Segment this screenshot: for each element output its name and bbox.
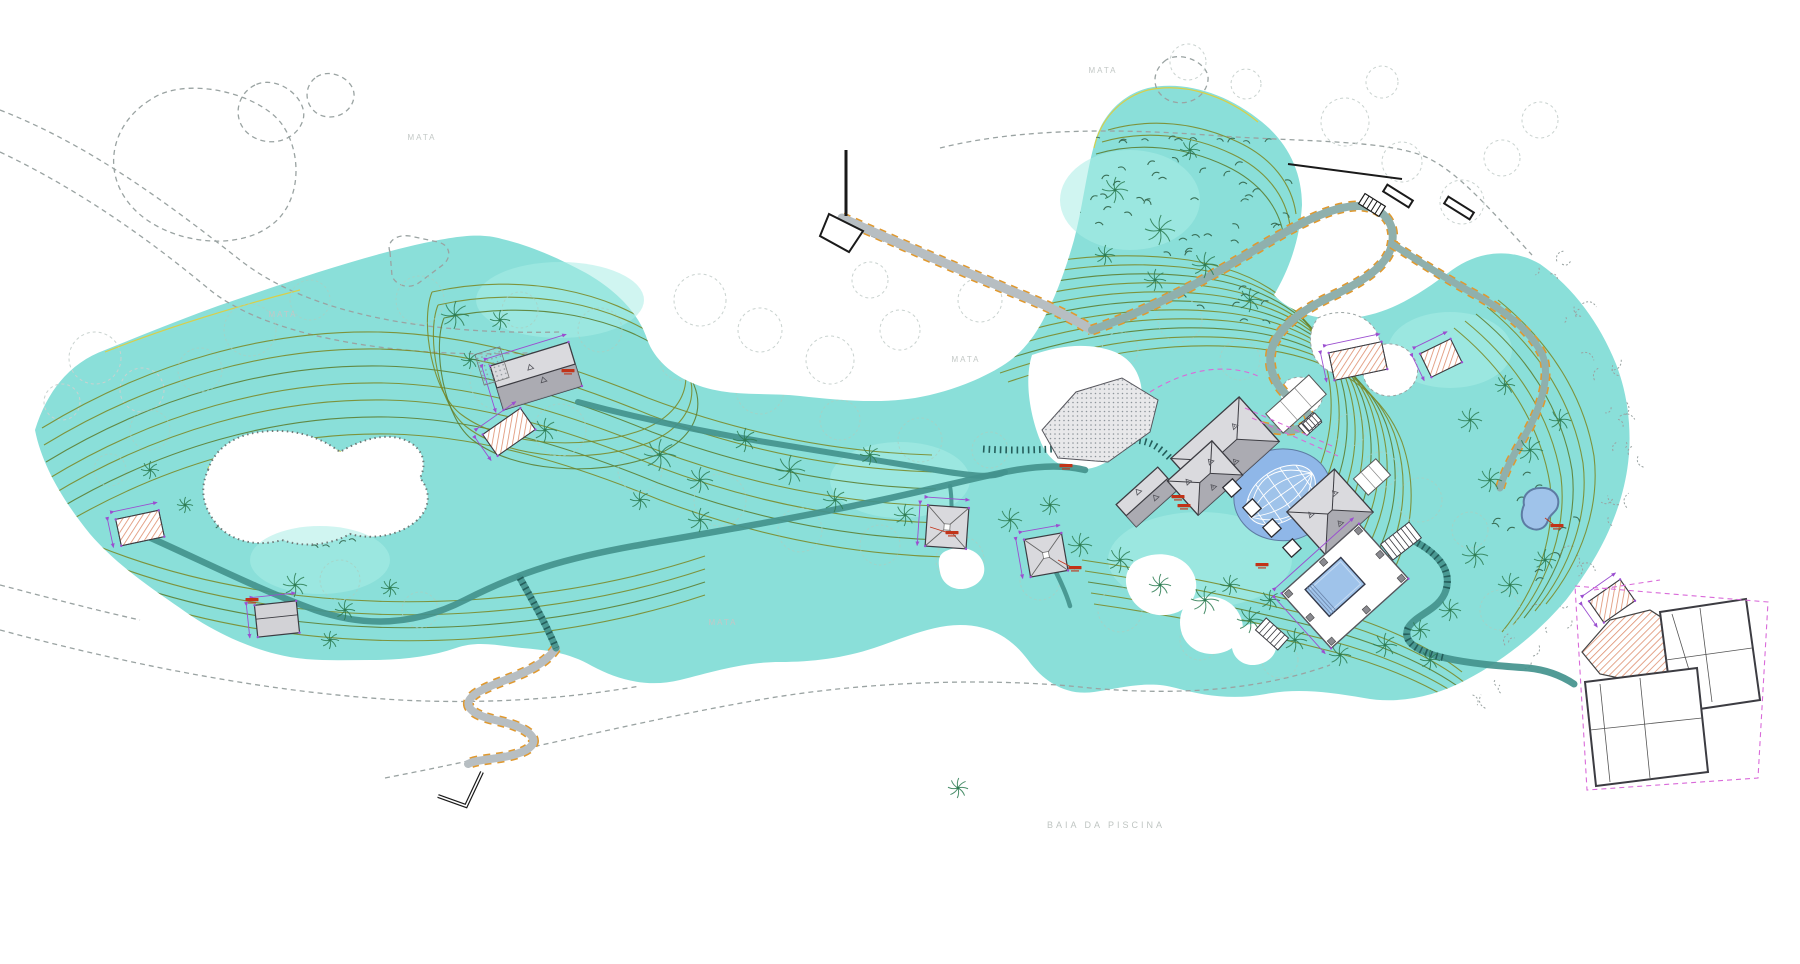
red-annotation-underline xyxy=(948,535,956,536)
survey-tree-circle xyxy=(1484,140,1520,176)
rock-mark xyxy=(1494,679,1496,686)
survey-tree-circle xyxy=(852,262,888,298)
scrub-mark xyxy=(385,461,392,465)
scrub-mark xyxy=(392,459,399,463)
rock-mark xyxy=(1533,645,1542,657)
boundary-dashed-line xyxy=(114,88,296,241)
rock-mark xyxy=(1473,694,1480,705)
palm-tree-icon xyxy=(948,778,968,798)
survey-tree-circle xyxy=(806,336,854,384)
boundary-dashed-line xyxy=(238,82,304,141)
scrub-mark xyxy=(1025,305,1032,308)
scrub-mark xyxy=(1414,154,1421,157)
edge-line xyxy=(208,440,342,468)
rock-mark xyxy=(1565,620,1573,630)
light-terrain-patch xyxy=(1060,150,1200,250)
scrub-mark xyxy=(1026,140,1033,144)
survey-tree-circle xyxy=(1366,66,1398,98)
light-terrain-patch xyxy=(476,262,644,338)
scrub-mark xyxy=(1314,145,1321,147)
red-annotation-underline xyxy=(248,602,256,603)
rock-mark xyxy=(1582,300,1597,307)
canopy-circle xyxy=(660,340,700,380)
rock-mark xyxy=(1560,606,1568,608)
red-annotation-underline xyxy=(1062,468,1070,469)
scrub-mark xyxy=(373,458,380,462)
scrub-mark xyxy=(264,438,271,441)
red-annotation-underline xyxy=(1071,570,1079,571)
scrub-mark xyxy=(982,147,989,150)
survey-tree-circle xyxy=(738,308,782,352)
scrub-mark xyxy=(269,435,276,440)
boundary-dashed-line xyxy=(0,585,140,620)
rock-mark xyxy=(1478,695,1486,710)
survey-tree-circle xyxy=(880,310,920,350)
scrub-mark xyxy=(360,457,367,460)
red-annotation-label xyxy=(562,369,575,372)
scrub-mark xyxy=(256,527,263,531)
survey-tree-circle xyxy=(1522,102,1558,138)
rock-mark xyxy=(1545,626,1547,633)
scrub-mark xyxy=(921,262,928,265)
faint-label: MATA xyxy=(708,618,737,627)
scrub-mark xyxy=(351,453,358,457)
scrub-mark xyxy=(413,467,420,469)
scrub-mark xyxy=(251,439,258,441)
survey-tree-circle xyxy=(1231,69,1261,99)
rock-mark xyxy=(1554,249,1563,261)
survey-tree-circle xyxy=(1321,98,1369,146)
gate-bar xyxy=(1444,197,1474,220)
light-terrain-patch xyxy=(250,526,390,594)
scrub-mark xyxy=(240,524,247,529)
scrub-mark xyxy=(306,446,313,448)
red-annotation-underline xyxy=(1258,567,1266,568)
rock-mark xyxy=(1498,685,1501,693)
survey-tree-circle xyxy=(1382,142,1422,182)
rock-mark xyxy=(1562,261,1571,266)
survey-tree-circle xyxy=(674,274,726,326)
boundary-dashed-line xyxy=(307,74,354,117)
scrub-mark xyxy=(406,465,413,469)
scrub-mark xyxy=(1073,142,1080,144)
red-annotation-underline xyxy=(1553,528,1561,529)
site-plan-drawing: MATAMATAMATAMATAMATABAIA DA PISCINA xyxy=(0,0,1800,964)
scrub-mark xyxy=(913,258,920,262)
scrub-mark xyxy=(881,245,888,249)
faint-label: BAIA DA PISCINA xyxy=(1047,820,1165,830)
road xyxy=(468,648,556,764)
scrub-mark xyxy=(313,444,320,448)
red-annotation-label xyxy=(246,598,259,601)
scrub-mark xyxy=(283,437,290,441)
faint-label: MATA xyxy=(268,310,297,319)
red-annotation-label xyxy=(946,531,959,534)
fence-line xyxy=(1288,164,1402,179)
scrub-mark xyxy=(1392,157,1399,160)
south-gate xyxy=(438,772,482,806)
red-annotation-label xyxy=(1551,524,1564,527)
red-annotation-underline xyxy=(1174,499,1182,500)
red-annotation-label xyxy=(1069,566,1082,569)
red-annotation-label xyxy=(1172,495,1185,498)
scrub-mark xyxy=(1341,151,1348,154)
red-annotation-label xyxy=(1060,464,1073,467)
faint-label: MATA xyxy=(951,355,980,364)
scrub-mark xyxy=(232,526,239,529)
site-plan-page: MATAMATAMATAMATAMATABAIA DA PISCINA xyxy=(0,0,1800,964)
scrub-mark xyxy=(294,444,301,448)
scrub-mark xyxy=(386,522,393,526)
faint-label: MATA xyxy=(1088,66,1117,75)
scrub-mark xyxy=(1049,144,1056,148)
red-annotation-label xyxy=(1178,504,1191,507)
survey-tree-circle xyxy=(1170,44,1206,80)
rock-mark xyxy=(1635,456,1643,469)
red-annotation-label xyxy=(1256,563,1269,566)
gate-bar xyxy=(1383,185,1413,208)
scrub-mark xyxy=(377,530,384,534)
scrub-mark xyxy=(401,523,408,527)
scrub-mark xyxy=(999,141,1006,146)
rock-mark xyxy=(1623,493,1628,508)
faint-label: MATA xyxy=(407,133,436,142)
red-annotation-underline xyxy=(564,373,572,374)
road xyxy=(842,218,1092,330)
gate-steps xyxy=(1359,194,1386,217)
scrub-mark xyxy=(892,249,899,251)
scrub-mark xyxy=(337,452,344,455)
annex-block-2 xyxy=(1585,668,1708,786)
red-annotation-underline xyxy=(1180,508,1188,509)
scrub-mark xyxy=(1292,144,1299,148)
scrub-mark xyxy=(956,151,963,153)
scrub-mark xyxy=(328,450,335,454)
scrub-mark xyxy=(1368,151,1375,155)
